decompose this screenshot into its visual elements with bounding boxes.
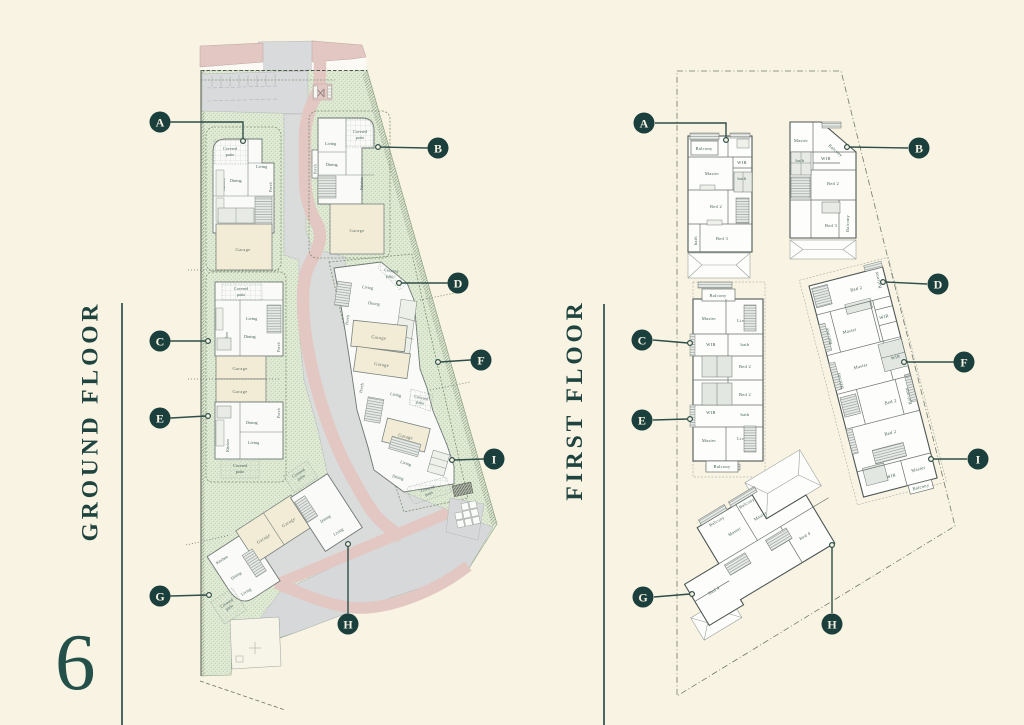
svg-text:Bed 2: Bed 2	[710, 204, 722, 209]
svg-text:patio: patio	[237, 292, 245, 297]
svg-text:Bed 3: Bed 3	[825, 223, 838, 228]
svg-text:Master: Master	[702, 316, 716, 321]
svg-text:Garage: Garage	[232, 366, 247, 371]
svg-text:bath: bath	[693, 236, 698, 245]
svg-text:A: A	[640, 117, 649, 131]
svg-text:Living: Living	[248, 440, 260, 445]
svg-text:Bed 2: Bed 2	[827, 181, 839, 186]
svg-text:E: E	[156, 412, 164, 426]
svg-text:FIRST FLOOR: FIRST FLOOR	[562, 299, 588, 500]
svg-text:Living: Living	[325, 141, 337, 146]
svg-text:H: H	[343, 618, 353, 632]
svg-text:E: E	[638, 414, 646, 428]
svg-text:G: G	[638, 591, 647, 605]
svg-text:Balcony: Balcony	[845, 214, 850, 232]
svg-text:patio: patio	[226, 152, 234, 157]
svg-text:6: 6	[55, 617, 96, 707]
svg-text:Bed 2: Bed 2	[739, 364, 751, 369]
svg-text:Garage: Garage	[235, 247, 250, 252]
svg-text:B: B	[434, 142, 442, 156]
svg-text:B: B	[915, 142, 923, 156]
svg-text:Master: Master	[794, 138, 808, 143]
svg-text:Garage: Garage	[232, 389, 247, 394]
svg-text:WIR: WIR	[706, 410, 716, 415]
svg-text:C: C	[638, 334, 647, 348]
svg-text:H: H	[827, 618, 837, 632]
svg-text:Dining: Dining	[230, 178, 243, 183]
svg-text:F: F	[477, 354, 484, 368]
svg-text:I: I	[492, 453, 497, 467]
svg-text:Garage: Garage	[349, 228, 364, 233]
svg-text:Kitchen: Kitchen	[359, 176, 364, 190]
svg-text:Balcony: Balcony	[713, 464, 731, 469]
svg-text:Master: Master	[702, 438, 716, 443]
svg-text:bath: bath	[741, 412, 750, 417]
svg-text:Balcony: Balcony	[709, 293, 727, 298]
svg-text:F: F	[960, 356, 967, 370]
svg-text:WIR: WIR	[737, 160, 747, 165]
svg-text:Covered: Covered	[223, 146, 238, 151]
svg-text:patio: patio	[356, 135, 364, 140]
svg-text:G: G	[155, 590, 164, 604]
svg-text:Living: Living	[256, 164, 268, 169]
svg-text:Dining: Dining	[246, 420, 259, 425]
svg-text:A: A	[156, 116, 165, 130]
svg-text:D: D	[454, 277, 463, 291]
svg-text:Porch: Porch	[268, 181, 273, 192]
svg-text:Kitchen: Kitchen	[225, 438, 230, 452]
svg-text:WIR: WIR	[706, 342, 716, 347]
svg-text:bath: bath	[741, 342, 750, 347]
svg-text:GROUND FLOOR: GROUND FLOOR	[78, 301, 104, 542]
svg-text:D: D	[934, 278, 943, 292]
svg-text:Covered: Covered	[234, 286, 249, 291]
svg-text:patio: patio	[236, 469, 244, 474]
svg-text:bath: bath	[796, 158, 805, 163]
svg-text:Porch: Porch	[276, 341, 281, 352]
svg-text:I: I	[976, 453, 981, 467]
svg-text:C: C	[156, 335, 165, 349]
svg-text:Dining: Dining	[244, 334, 257, 339]
svg-text:Living: Living	[246, 316, 258, 321]
svg-text:WIR: WIR	[821, 156, 831, 161]
svg-text:Bed 2: Bed 2	[739, 392, 751, 397]
svg-text:Master: Master	[705, 171, 719, 176]
svg-text:Balcony: Balcony	[695, 146, 713, 151]
svg-text:Porch: Porch	[276, 407, 281, 418]
svg-text:Covered: Covered	[233, 463, 248, 468]
svg-text:Dining: Dining	[326, 162, 339, 167]
svg-text:Covered: Covered	[353, 129, 368, 134]
svg-text:Porch: Porch	[313, 163, 318, 174]
svg-text:bath: bath	[738, 176, 747, 181]
svg-text:Bed 3: Bed 3	[716, 236, 729, 241]
